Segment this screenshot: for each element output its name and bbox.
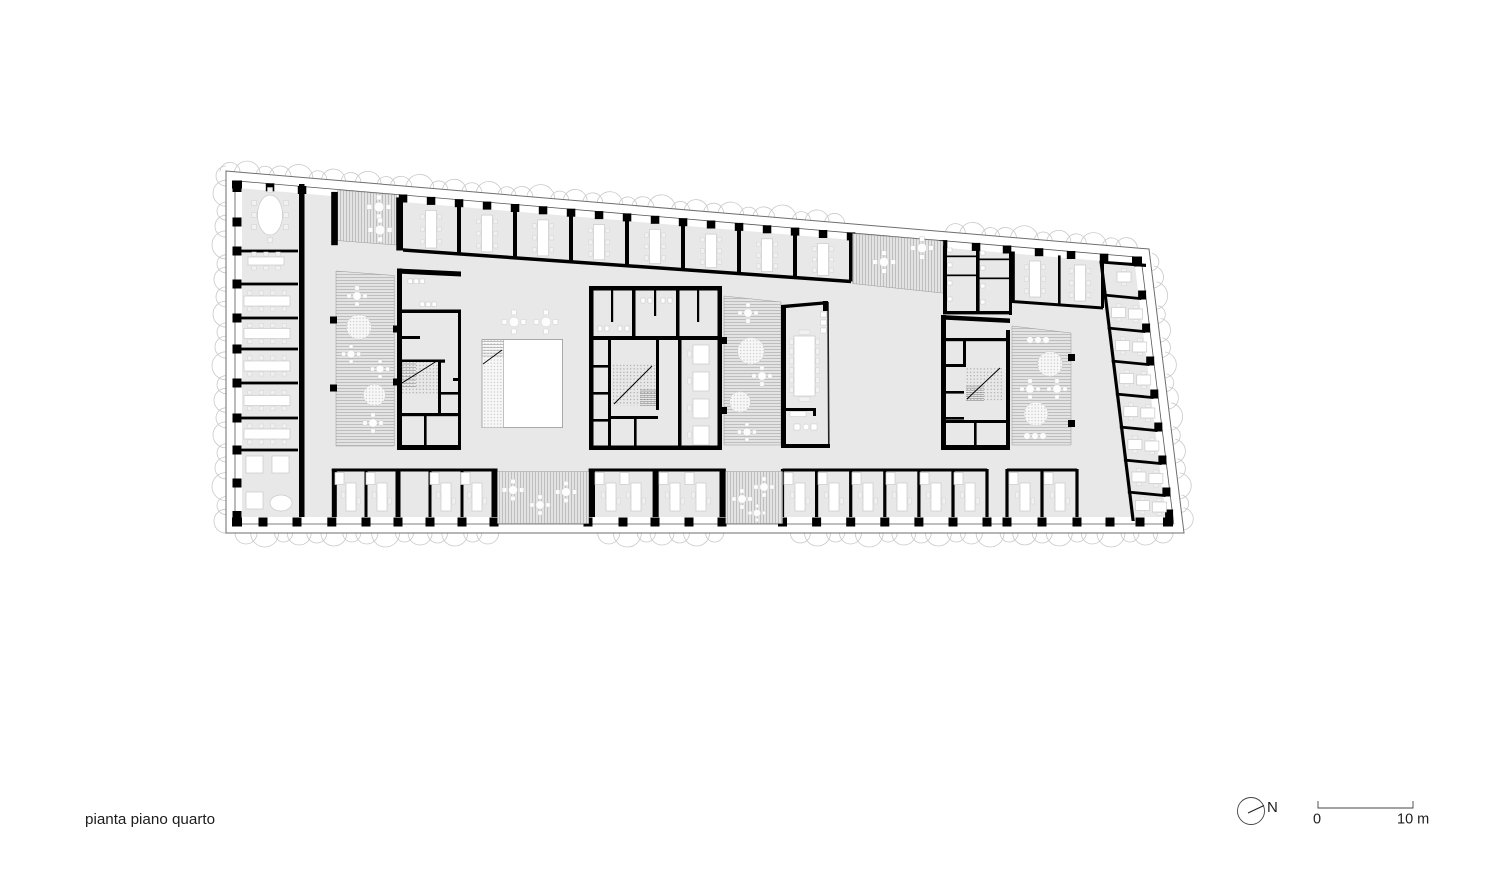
svg-text:0: 0 — [1313, 812, 1321, 828]
svg-text:10 m: 10 m — [1397, 812, 1429, 828]
svg-text:N: N — [1267, 799, 1278, 816]
svg-text:pianta piano quarto: pianta piano quarto — [85, 811, 215, 828]
